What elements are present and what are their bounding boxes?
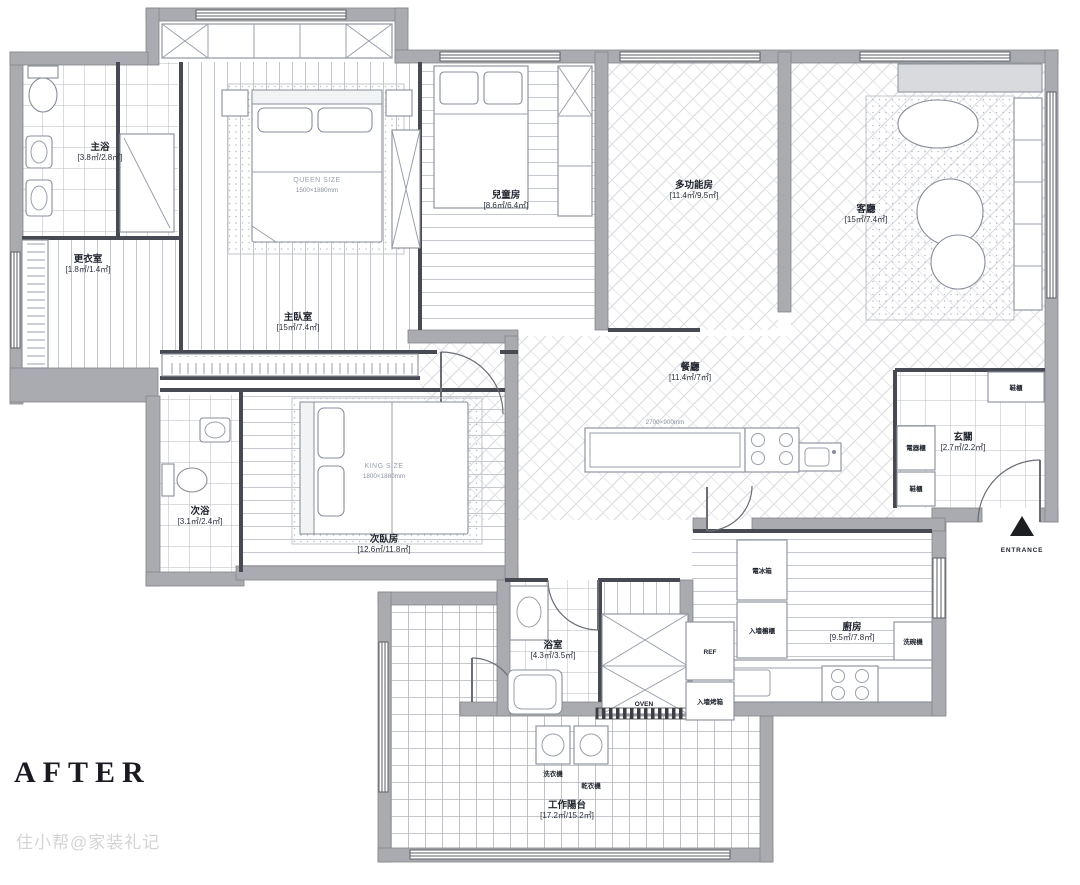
- wardrobe-master-top: [162, 24, 392, 58]
- oven-label: OVEN: [635, 701, 654, 708]
- sink-second: [200, 418, 230, 442]
- island-dim-label: 2700×900mm: [646, 419, 685, 426]
- dresser-master: [392, 130, 420, 248]
- shower: [120, 134, 174, 232]
- washer-label: 洗衣機: [543, 769, 563, 778]
- coffee-table: [898, 100, 978, 148]
- dining-island: [585, 428, 745, 472]
- floor-plan-page: 主浴[3.8㎡/2.8㎡] 更衣室[1.8㎡/1.4㎡] 主臥室[15㎡/7.4…: [0, 0, 1080, 885]
- second-bed-dim-label: 1800×1880mm: [363, 473, 405, 480]
- master-bed: [252, 90, 382, 242]
- vanity-bath: [510, 586, 548, 640]
- sink-master-2: [26, 180, 52, 216]
- kids-bed: [434, 66, 528, 208]
- corridor-cabinet: [602, 614, 688, 714]
- window-multi-top: [620, 52, 760, 61]
- window-kitchen-right: [933, 558, 945, 618]
- room-label-balcony: 工作陽台[17.2㎡/15.2㎡]: [540, 799, 594, 820]
- wall-oven-label: 入墻烤箱: [696, 697, 724, 706]
- tall-fridge-label: 電冰箱: [752, 566, 772, 575]
- fridge-label: REF: [704, 649, 717, 656]
- dryer-unit: [574, 726, 608, 764]
- window-master-top: [196, 10, 346, 19]
- wall-cabinet-label: 入墻櫥櫃: [748, 626, 776, 635]
- shoe-cabinet-top-label: 鞋櫃: [1010, 383, 1024, 392]
- island-hob: [745, 428, 799, 472]
- master-bed-type-label: QUEEN SIZE: [293, 177, 340, 184]
- washer-unit: [536, 726, 570, 764]
- shoe-cabinet-side-label: 鞋櫃: [910, 484, 924, 493]
- entrance-arrow-icon: [1010, 516, 1034, 536]
- window-dressing-left: [11, 252, 20, 348]
- vent-strip: [596, 708, 700, 719]
- nightstand-left: [222, 90, 248, 116]
- toilet-master: [28, 66, 58, 112]
- floor-plan: 主浴[3.8㎡/2.8㎡] 更衣室[1.8㎡/1.4㎡] 主臥室[15㎡/7.4…: [0, 0, 1080, 885]
- closet-band: [162, 354, 418, 376]
- room-label-multi-room: 多功能房[11.4㎡/9.5㎡]: [670, 179, 719, 200]
- master-bed-dim-label: 1500×1880mm: [296, 187, 338, 194]
- pouf-1: [917, 179, 983, 245]
- dryer-label: 乾衣機: [581, 781, 601, 790]
- after-title: AFTER: [14, 756, 151, 789]
- island-sink: [799, 443, 841, 471]
- nightstand-right: [386, 90, 412, 116]
- bathtub: [508, 670, 562, 714]
- window-living-right: [1047, 92, 1056, 298]
- window-balcony-bottom: [410, 850, 730, 859]
- watermark: 住小帮@家装礼记: [16, 833, 160, 852]
- appliance-cabinet-label: 電器櫃: [906, 443, 926, 452]
- dishwasher-label: 洗碗機: [903, 637, 923, 646]
- window-kids-top: [440, 52, 560, 61]
- sofa-bench: [1014, 98, 1042, 310]
- entrance-label: ENTRANCE: [1001, 547, 1044, 554]
- window-balcony-left: [379, 642, 388, 792]
- pouf-2: [931, 235, 985, 289]
- kitchen-hob: [822, 666, 878, 702]
- wardrobe-dressing: [22, 240, 48, 368]
- window-living-top: [860, 52, 1010, 61]
- wardrobe-kids: [558, 66, 592, 216]
- tv-console: [898, 64, 1042, 92]
- second-bed-type-label: KING SIZE: [364, 463, 403, 470]
